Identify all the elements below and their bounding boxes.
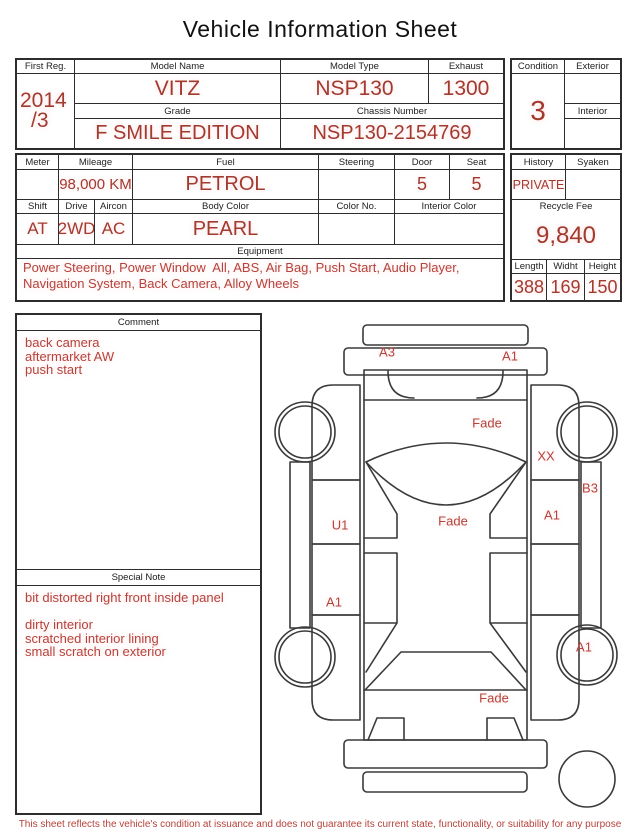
aircon-header: Aircon <box>95 200 133 214</box>
damage-label-a1-front: A1 <box>502 349 518 364</box>
fuel-value: PETROL <box>133 170 319 200</box>
fuel-header: Fuel <box>133 155 319 170</box>
grade-header: Grade <box>75 104 281 119</box>
height-header: Height <box>585 260 620 274</box>
interior-header: Interior <box>565 104 620 119</box>
special-note-header: Special Note <box>17 569 260 586</box>
seat-value: 5 <box>450 170 503 200</box>
condition-box: Condition 3 Exterior Interior <box>510 58 622 150</box>
special-note-content: bit distorted right front inside panel d… <box>17 586 260 664</box>
exhaust-value: 1300 <box>429 74 503 104</box>
left-front-fender <box>312 385 360 480</box>
rear-right-wheel <box>557 625 617 685</box>
condition-header: Condition <box>512 60 565 74</box>
exterior-header: Exterior <box>565 60 620 74</box>
note-line: scratched interior lining <box>25 632 252 646</box>
first-reg-header: First Reg. <box>17 60 75 74</box>
damage-label-a1-rear-wheel: A1 <box>576 640 592 655</box>
comment-box: Comment back camera aftermarket AW push … <box>15 313 262 815</box>
page-title: Vehicle Information Sheet <box>0 16 640 43</box>
first-reg-value: 2014 /3 <box>17 74 75 148</box>
syaken-header: Syaken <box>566 155 620 170</box>
right-windows <box>490 462 527 672</box>
vehicle-information-sheet: Vehicle Information Sheet First Reg. Mod… <box>0 0 640 835</box>
length-header: Length <box>512 260 547 274</box>
note-line: small scratch on exterior <box>25 645 252 659</box>
mileage-value: 98,000 KM <box>59 170 133 200</box>
seat-header: Seat <box>450 155 503 170</box>
shift-header: Shift <box>17 200 59 214</box>
note-line: dirty interior <box>25 618 252 632</box>
damage-label-fade-roof: Fade <box>438 514 468 529</box>
left-windows <box>364 462 397 672</box>
width-header: Widht <box>547 260 585 274</box>
front-right-wheel <box>557 402 617 462</box>
damage-label-u1: U1 <box>332 518 349 533</box>
front-bumper-top-bar <box>363 325 528 345</box>
car-diagram: A3 A1 Fade XX B3 U1 A1 Fade A1 A1 Fade <box>260 310 640 822</box>
comment-line: aftermarket AW <box>25 350 252 364</box>
meter-value <box>17 170 59 200</box>
drive-value: 2WD <box>59 214 95 245</box>
door-header: Door <box>395 155 450 170</box>
height-value: 150 <box>585 274 620 300</box>
right-rear-door <box>531 544 579 615</box>
model-type-header: Model Type <box>281 60 429 74</box>
door-value: 5 <box>395 170 450 200</box>
note-line: bit distorted right front inside panel <box>25 591 252 605</box>
model-type-value: NSP130 <box>281 74 429 104</box>
chassis-number-header: Chassis Number <box>281 104 503 119</box>
aircon-value: AC <box>95 214 133 245</box>
equipment-header: Equipment <box>17 245 503 259</box>
exhaust-header: Exhaust <box>429 60 503 74</box>
comment-header: Comment <box>17 315 260 331</box>
damage-label-xx: XX <box>537 449 554 464</box>
model-name-value: VITZ <box>75 74 281 104</box>
first-reg-month: /3 <box>31 111 49 131</box>
damage-label-a3: A3 <box>379 345 395 360</box>
width-value: 169 <box>547 274 585 300</box>
car-diagram-svg <box>260 310 640 822</box>
car-body-outline <box>364 370 527 740</box>
recycle-fee-header: Recycle Fee <box>512 200 620 213</box>
damage-label-fade-hood: Fade <box>472 416 502 431</box>
recycle-fee-value: 9,840 <box>512 213 620 260</box>
steering-header: Steering <box>319 155 395 170</box>
rear-bumper-bottom-bar <box>363 772 527 792</box>
tail-lights <box>368 718 523 740</box>
mileage-header: Mileage <box>59 155 133 170</box>
chassis-number-value: NSP130-2154769 <box>281 119 503 148</box>
rear-left-wheel-inner <box>279 631 331 683</box>
model-name-header: Model Name <box>75 60 281 74</box>
note-line <box>25 605 252 619</box>
left-front-door <box>312 480 360 544</box>
rear-right-wheel-inner <box>561 629 613 681</box>
condition-value: 3 <box>512 74 565 148</box>
steering-value <box>319 170 395 200</box>
front-left-wheel-inner <box>279 406 331 458</box>
front-left-wheel <box>275 402 335 462</box>
syaken-value <box>566 170 620 200</box>
comment-line: push start <box>25 363 252 377</box>
rear-window <box>364 652 527 690</box>
footer-disclaimer: This sheet reflects the vehicle's condit… <box>0 819 640 830</box>
exterior-value <box>565 74 620 104</box>
damage-label-a1-left-door: A1 <box>326 595 342 610</box>
drive-header: Drive <box>59 200 95 214</box>
right-rear-fender <box>531 615 579 720</box>
history-value: PRIVATE <box>512 170 566 200</box>
damage-label-a1-right-door: A1 <box>544 508 560 523</box>
interior-color-value <box>395 214 503 245</box>
body-color-value: PEARL <box>133 214 319 245</box>
equipment-value: Power Steering, Power Window All, ABS, A… <box>17 259 503 300</box>
shift-value: AT <box>17 214 59 245</box>
spec-table: Meter Mileage Fuel Steering Door Seat 98… <box>15 153 505 302</box>
right-front-fender <box>531 385 579 480</box>
history-header: History <box>512 155 566 170</box>
left-sill-strip <box>290 462 310 628</box>
length-value: 388 <box>512 274 547 300</box>
first-reg-year: 2014 <box>20 91 67 111</box>
color-no-value <box>319 214 395 245</box>
interior-value <box>565 119 620 148</box>
damage-label-fade-trunk: Fade <box>479 691 509 706</box>
body-color-header: Body Color <box>133 200 319 214</box>
damage-label-b3: B3 <box>582 481 598 496</box>
info-table: First Reg. Model Name Model Type Exhaust… <box>15 58 505 150</box>
history-box: History Syaken PRIVATE Recycle Fee 9,840… <box>510 153 622 302</box>
grade-value: F SMILE EDITION <box>75 119 281 148</box>
comment-content: back camera aftermarket AW push start <box>17 331 260 569</box>
comment-line: back camera <box>25 336 252 350</box>
rear-bumper-bar <box>344 740 547 768</box>
meter-header: Meter <box>17 155 59 170</box>
spare-wheel <box>559 751 615 807</box>
rear-left-wheel <box>275 627 335 687</box>
interior-color-header: Interior Color <box>395 200 503 214</box>
front-right-wheel-inner <box>561 406 613 458</box>
color-no-header: Color No. <box>319 200 395 214</box>
